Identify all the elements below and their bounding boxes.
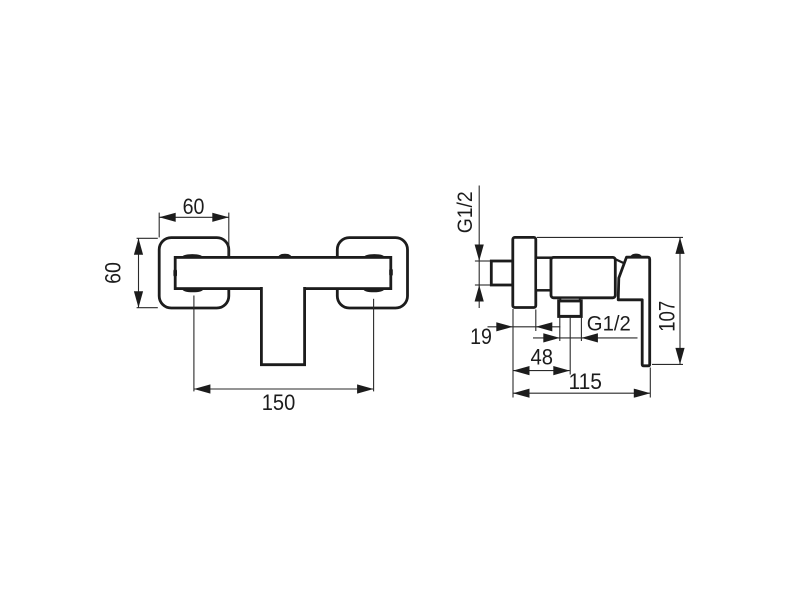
svg-text:115: 115 (568, 369, 602, 394)
svg-text:19: 19 (470, 324, 492, 349)
svg-text:60: 60 (183, 194, 205, 219)
svg-text:48: 48 (531, 345, 554, 370)
svg-text:107: 107 (655, 301, 680, 332)
svg-text:G1/2: G1/2 (453, 191, 477, 233)
svg-text:60: 60 (100, 262, 125, 284)
svg-text:150: 150 (262, 390, 296, 415)
svg-text:G1/2: G1/2 (587, 312, 631, 336)
